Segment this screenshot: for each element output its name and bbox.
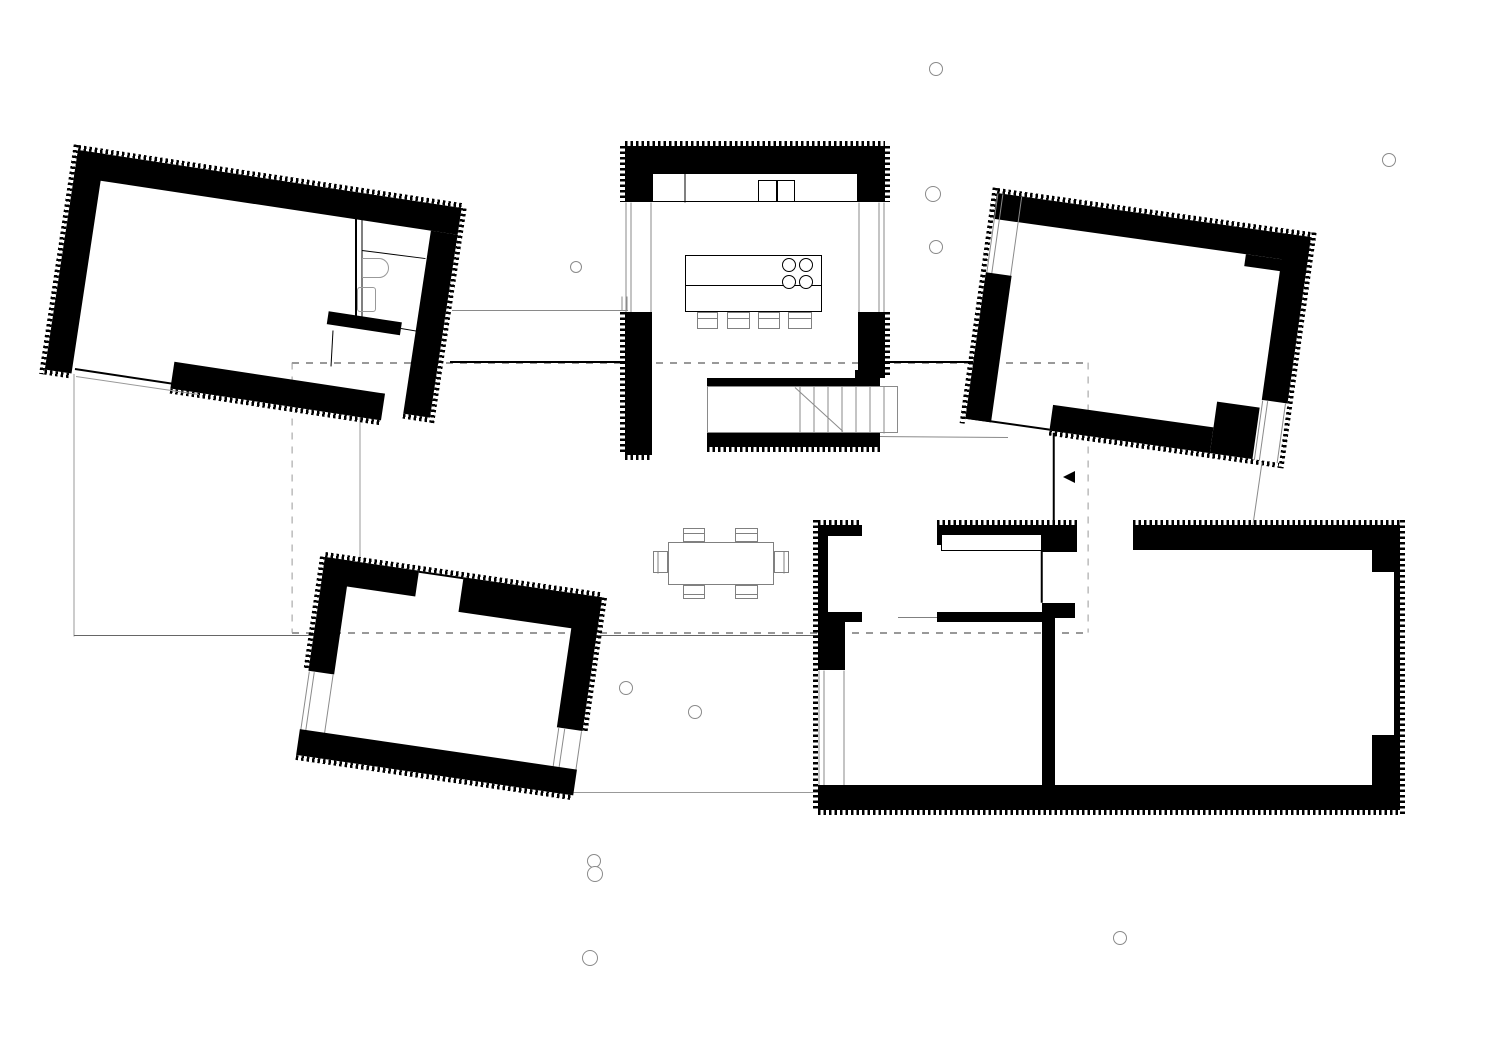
link-glass (452, 310, 628, 311)
chair-line (735, 594, 758, 595)
stair-tread (842, 386, 843, 433)
wall-corner (625, 173, 652, 202)
closet (941, 534, 1042, 551)
interior-wall (1042, 603, 1055, 785)
stool-line (697, 318, 718, 319)
chair (774, 551, 789, 573)
link-wall (1053, 433, 1055, 524)
terrace-edge-left (74, 372, 75, 636)
window-line (844, 670, 845, 785)
wall-left (625, 312, 652, 455)
insulation-hatch (707, 447, 880, 452)
window-line (884, 202, 885, 312)
window-line (824, 670, 825, 785)
wall-corner (1372, 735, 1400, 785)
wall-left (818, 612, 845, 670)
site-circle (582, 950, 598, 966)
wall-top-block (1042, 525, 1077, 552)
dashed-outline-bottom (292, 632, 1088, 633)
stool-line (727, 318, 750, 319)
window-line (859, 202, 860, 312)
walkway-line (1253, 462, 1263, 524)
cooktop-burner (799, 258, 813, 272)
cooktop-burner (782, 258, 796, 272)
wall-right (858, 312, 885, 378)
wall-top (625, 146, 885, 173)
kitchen-sink (777, 180, 795, 202)
interior-wall (1055, 603, 1075, 618)
dining-table (668, 542, 774, 585)
site-circle (1113, 931, 1127, 945)
bar-stool (727, 312, 750, 329)
link-wall (882, 361, 973, 363)
bar-stool (697, 312, 718, 329)
floor-plan-canvas (0, 0, 1512, 1054)
window-line (626, 202, 627, 312)
insulation-hatch (625, 455, 652, 460)
insulation-hatch (885, 312, 890, 378)
cooktop-burner (782, 275, 796, 289)
stool-line (758, 318, 780, 319)
interior-wall (937, 612, 1050, 622)
stair-tread (828, 386, 829, 433)
stool-line (788, 318, 812, 319)
terrace-edge-lower (570, 792, 818, 793)
sink (357, 287, 376, 312)
toilet (362, 258, 389, 278)
wall-top (1133, 525, 1400, 550)
site-circle (619, 681, 633, 695)
insulation-hatch (818, 810, 1400, 815)
entrance-arrow-icon (1063, 471, 1075, 483)
link-wall (450, 361, 628, 363)
window-line (819, 670, 820, 785)
site-circle (688, 705, 702, 719)
cooktop-burner (799, 275, 813, 289)
site-circle (570, 261, 582, 273)
bar-stool (758, 312, 780, 329)
stair-tread (856, 386, 857, 433)
partition-line (1041, 551, 1043, 603)
site-circle (929, 240, 943, 254)
chair-line (683, 533, 705, 534)
stair-tread (814, 386, 815, 433)
kitchen-sink (758, 180, 777, 202)
chair-line (658, 551, 659, 573)
glass-link-left (360, 413, 361, 559)
wall-bottom-block (1210, 402, 1260, 459)
stair-tread (870, 386, 871, 433)
counter-divider (685, 173, 686, 202)
site-circle (929, 62, 943, 76)
stair-wall (855, 370, 880, 386)
stair-tread (884, 386, 885, 433)
wall-corner (858, 173, 885, 202)
insulation-hatch (885, 146, 890, 202)
chair (683, 585, 705, 599)
window-line (631, 202, 632, 312)
wardrobe-niche (828, 536, 862, 612)
room-fill (818, 525, 1400, 810)
site-circle (925, 186, 941, 202)
kitchen-counter (652, 173, 858, 202)
window-line (651, 202, 652, 312)
bar-stool (788, 312, 812, 329)
window-line (879, 202, 880, 312)
site-circle (1382, 153, 1396, 167)
link-glass (622, 296, 623, 310)
insulation-hatch (1400, 520, 1405, 815)
chair-line (784, 551, 785, 573)
dashed-outline-right (1087, 363, 1088, 633)
chair (653, 551, 668, 573)
door-line (898, 617, 937, 618)
chair (735, 585, 758, 599)
chair-line (735, 533, 758, 534)
wall-bottom (818, 785, 1400, 810)
stair-wall (707, 433, 880, 447)
chair (735, 528, 758, 542)
link-glass (627, 296, 628, 310)
site-circle (587, 866, 603, 882)
chair (683, 528, 705, 542)
chair-line (683, 594, 705, 595)
